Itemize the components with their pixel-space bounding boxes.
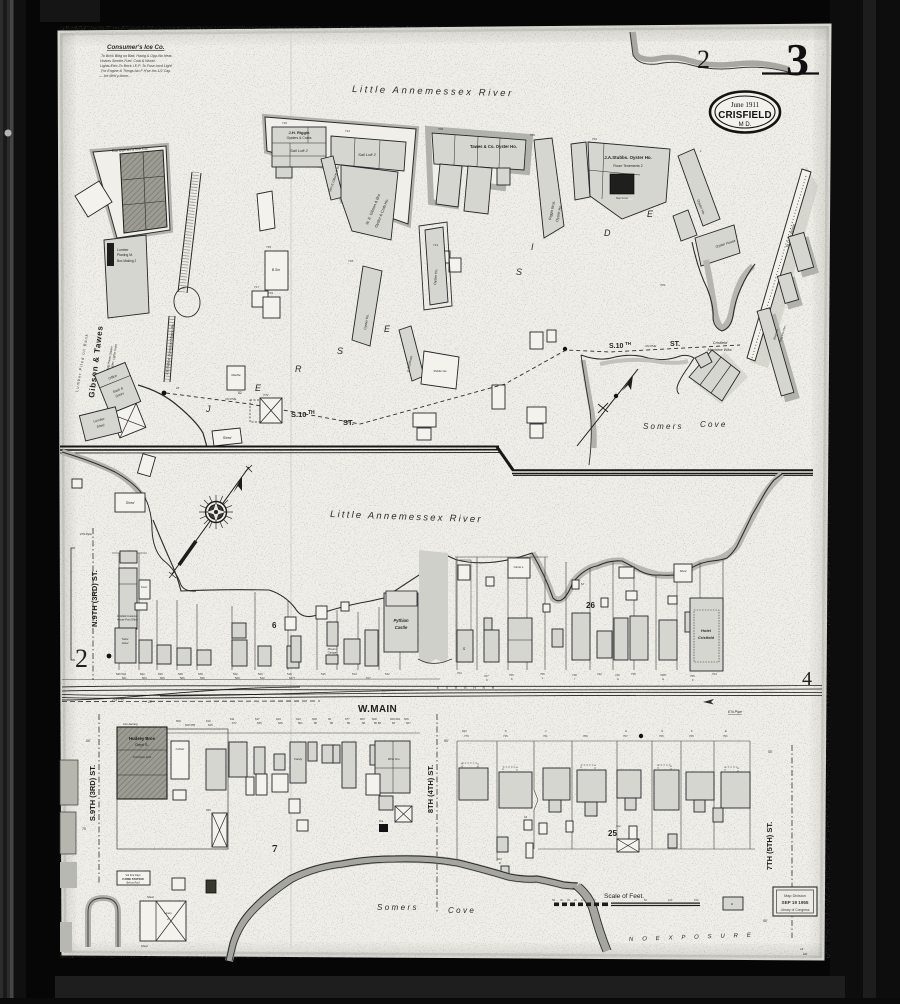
- svg-text:E: E: [647, 209, 654, 219]
- svg-text:Tawes & Co. Oyster Ho.: Tawes & Co. Oyster Ho.: [470, 144, 517, 149]
- svg-text:Room Tenements 2: Room Tenements 2: [613, 164, 642, 168]
- svg-text:80: 80: [347, 721, 351, 725]
- svg-text:Shed: Shed: [680, 569, 687, 573]
- svg-text:Lights:Elec-To Brick I.E.P. To: Lights:Elec-To Brick I.E.P. To Fuse-Incd…: [100, 64, 173, 68]
- svg-text:N.9TH (3RD) ST.: N.9TH (3RD) ST.: [90, 570, 99, 627]
- svg-text:Garage: Garage: [328, 651, 337, 655]
- svg-text:701: 701: [723, 734, 728, 738]
- svg-text:K: K: [511, 677, 513, 681]
- svg-text:Shed: Shed: [126, 501, 135, 505]
- svg-text:Castle: Castle: [395, 625, 408, 630]
- svg-text:Box Making 2: Box Making 2: [117, 259, 137, 263]
- svg-text:H: H: [625, 729, 627, 733]
- svg-text:801: 801: [298, 721, 303, 725]
- svg-text:Iron Awning: Iron Awning: [123, 722, 138, 726]
- svg-text:S: S: [516, 267, 522, 277]
- svg-text:TH: TH: [308, 410, 315, 416]
- svg-text:Shed: Shed: [223, 436, 232, 440]
- svg-text:Court: Court: [141, 585, 148, 589]
- svg-text:To Brick Bldg on Batt, Haulg &: To Brick Bldg on Batt, Haulg & Opp-No He…: [101, 54, 173, 58]
- svg-text:M D.: M D.: [739, 122, 752, 128]
- svg-text:716: 716: [282, 121, 287, 125]
- svg-text:D: D: [604, 228, 611, 238]
- svg-text:E: E: [255, 383, 262, 393]
- svg-text:Scale of Feet.: Scale of Feet.: [604, 893, 644, 900]
- svg-text:14: 14: [800, 947, 804, 951]
- svg-text:M.: M.: [581, 582, 584, 586]
- svg-text:CRISFIELD: CRISFIELD: [718, 110, 772, 121]
- svg-text:Public Ho: Public Ho: [434, 369, 447, 373]
- svg-text:628 655: 628 655: [185, 723, 196, 727]
- svg-text:7: 7: [272, 843, 278, 855]
- svg-text:709: 709: [583, 734, 588, 738]
- svg-text:702: 702: [592, 137, 597, 141]
- svg-text:S.9TH (3RD) ST.: S.9TH (3RD) ST.: [88, 765, 97, 821]
- svg-text:50': 50': [86, 739, 91, 743]
- svg-text:82: 82: [392, 721, 396, 725]
- svg-text:Dept S.: Dept S.: [135, 742, 148, 747]
- svg-text:639: 639: [206, 808, 211, 812]
- svg-text:B.Sm: B.Sm: [272, 268, 280, 272]
- svg-text:Cove: Cove: [700, 420, 727, 429]
- svg-text:Crisfield: Crisfield: [698, 635, 715, 640]
- svg-text:Shed: Shed: [147, 895, 154, 899]
- svg-text:Crisfield Customs: Crisfield Customs: [117, 614, 138, 618]
- svg-text:3: 3: [786, 34, 809, 85]
- svg-text:Candy: Candy: [294, 757, 303, 761]
- svg-text:S.10: S.10: [609, 343, 624, 350]
- svg-text:4'N PVE: 4'N PVE: [645, 344, 657, 348]
- svg-text:779: 779: [464, 734, 469, 738]
- svg-text:25: 25: [608, 829, 617, 838]
- svg-text:7TH (5TH) ST.: 7TH (5TH) ST.: [765, 822, 774, 870]
- svg-text:6: 6: [272, 621, 277, 630]
- svg-text:677: 677: [232, 721, 237, 725]
- svg-text:J.H. Riggin: J.H. Riggin: [289, 130, 310, 135]
- svg-text:F: F: [691, 729, 693, 733]
- svg-text:F.FIRE STATION: F.FIRE STATION: [122, 877, 143, 881]
- svg-text:— Ice Mch'y:Amm.-: — Ice Mch'y:Amm.-: [98, 74, 131, 78]
- svg-text:Library of Congress: Library of Congress: [781, 908, 810, 912]
- svg-text:80: 80: [314, 721, 318, 725]
- svg-text:704: 704: [712, 672, 717, 676]
- svg-text:E'N Pipe: E'N Pipe: [728, 710, 742, 714]
- svg-text:708: 708: [438, 127, 443, 131]
- svg-text:K V R R H R R: K V R R H R R: [437, 686, 497, 690]
- svg-text:E: E: [384, 324, 391, 334]
- svg-text:Fire: Fire: [379, 820, 384, 823]
- svg-text:52: 52: [238, 391, 242, 395]
- svg-text:80: 80: [330, 721, 334, 725]
- svg-text:G: G: [661, 729, 663, 733]
- svg-text:709: 709: [660, 283, 665, 287]
- svg-text:18: 18: [524, 815, 528, 819]
- svg-text:Marble: Marble: [231, 373, 241, 377]
- svg-text:2'W Pipe: 2'W Pipe: [79, 532, 92, 536]
- svg-text:Somers: Somers: [377, 903, 419, 912]
- svg-text:Oysters & Crabs: Oysters & Crabs: [287, 136, 312, 140]
- svg-text:Consumer's Ice Co.: Consumer's Ice Co.: [107, 44, 165, 51]
- svg-text:SEP 19 1955: SEP 19 1955: [782, 900, 809, 905]
- svg-text:A: A: [617, 677, 619, 681]
- svg-text:715: 715: [266, 245, 271, 249]
- svg-text:100: 100: [668, 898, 673, 902]
- svg-text:Map Division: Map Division: [784, 894, 806, 898]
- svg-text:609: 609: [176, 719, 181, 723]
- svg-text:150: 150: [694, 898, 699, 902]
- svg-text:712: 712: [345, 129, 350, 133]
- svg-text:Mission: Mission: [328, 647, 337, 651]
- svg-text:Lumber: Lumber: [117, 248, 129, 252]
- svg-text:Hudsey Bros: Hudsey Bros: [129, 736, 156, 741]
- svg-text:706: 706: [530, 133, 535, 137]
- svg-text:701: 701: [543, 734, 548, 738]
- svg-text:512: 512: [385, 672, 390, 676]
- svg-text:2: 2: [697, 45, 710, 74]
- svg-text:F: F: [692, 678, 694, 682]
- svg-text:4'N PVE: 4'N PVE: [225, 397, 237, 401]
- svg-text:Crisfield: Crisfield: [713, 340, 728, 345]
- svg-text:738: 738: [631, 672, 636, 676]
- svg-text:Hoises Smoke-Fuel: Coal & Wood: Hoises Smoke-Fuel: Coal & Wood-: [100, 59, 157, 63]
- svg-text:80 80: 80 80: [374, 721, 381, 725]
- svg-text:Planing M.: Planing M.: [117, 253, 133, 257]
- svg-text:Sail Loft 2: Sail Loft 2: [290, 148, 309, 153]
- svg-text:26: 26: [586, 601, 595, 610]
- svg-text:D: D: [499, 861, 501, 865]
- svg-text:Furniture 2nd: Furniture 2nd: [133, 755, 151, 759]
- svg-text:717: 717: [254, 285, 259, 289]
- svg-text:102: 102: [616, 824, 621, 828]
- svg-text:S.10: S.10: [291, 410, 306, 419]
- svg-text:ST.: ST.: [343, 418, 354, 427]
- svg-text:Somers: Somers: [643, 422, 684, 431]
- svg-text:718: 718: [348, 259, 353, 263]
- svg-text:G: G: [662, 677, 664, 681]
- svg-text:80: 80: [362, 721, 366, 725]
- svg-text:2: 2: [75, 644, 88, 673]
- svg-text:707: 707: [623, 734, 628, 738]
- svg-text:J: J: [205, 404, 211, 414]
- svg-text:742: 742: [597, 672, 602, 676]
- svg-text:2: 2: [166, 917, 169, 921]
- svg-text:517: 517: [366, 676, 371, 680]
- svg-text:4: 4: [802, 668, 812, 690]
- svg-text:House Post Office: House Post Office: [117, 618, 138, 622]
- svg-text:705: 705: [689, 734, 694, 738]
- svg-text:Whol Gro.: Whol Gro.: [388, 757, 401, 761]
- svg-text:Somerset: Somerset: [620, 197, 633, 201]
- svg-text:50': 50': [763, 919, 768, 923]
- svg-text:625: 625: [278, 721, 283, 725]
- svg-text:June 1911: June 1911: [731, 101, 760, 109]
- svg-text:705: 705: [659, 734, 664, 738]
- svg-text:For Engine & Trimgs-No F H'se-: For Engine & Trimgs-No F H'se-Ins 1/2 Ca…: [101, 69, 170, 73]
- svg-text:Cove: Cove: [448, 906, 476, 915]
- svg-text:514: 514: [352, 672, 357, 676]
- svg-text:516: 516: [321, 672, 326, 676]
- svg-text:65': 65': [444, 739, 449, 743]
- svg-text:K: K: [505, 729, 507, 733]
- svg-text:W.MAIN: W.MAIN: [358, 704, 397, 715]
- svg-text:Bell on Roof: Bell on Roof: [126, 882, 139, 885]
- svg-text:713: 713: [433, 243, 438, 247]
- svg-text:75: 75: [82, 827, 86, 831]
- svg-text:50': 50': [768, 750, 773, 754]
- svg-text:8TH (4TH) ST.: 8TH (4TH) ST.: [426, 765, 435, 813]
- svg-text:J.A.Stubbs. Oyster Ho.: J.A.Stubbs. Oyster Ho.: [604, 155, 652, 160]
- svg-text:Shed: Shed: [141, 944, 148, 948]
- svg-text:S: S: [463, 646, 466, 651]
- svg-text:R: R: [295, 364, 302, 374]
- svg-text:K: K: [486, 678, 488, 682]
- svg-text:Cobbler: Cobbler: [176, 748, 185, 751]
- svg-text:7/72: 7/72: [263, 393, 269, 397]
- svg-text:715: 715: [503, 734, 508, 738]
- svg-text:629: 629: [208, 723, 213, 727]
- svg-text:Pythian: Pythian: [393, 618, 409, 623]
- svg-text:E: E: [725, 729, 727, 733]
- svg-text:Carrie L.: Carrie L.: [514, 565, 525, 569]
- svg-text:607: 607: [406, 721, 411, 725]
- svg-text:623: 623: [462, 729, 467, 733]
- svg-text:20: 20: [147, 700, 152, 704]
- svg-text:719: 719: [268, 291, 273, 295]
- svg-text:Hotel: Hotel: [122, 641, 129, 645]
- svg-text:TH: TH: [625, 341, 631, 346]
- svg-text:Sail Loft 2: Sail Loft 2: [358, 152, 377, 157]
- svg-text:704: 704: [457, 671, 462, 675]
- svg-text:ST.: ST.: [670, 341, 680, 348]
- svg-text:Livery: Livery: [164, 911, 172, 915]
- svg-text:635: 635: [257, 721, 262, 725]
- svg-text:S: S: [337, 346, 343, 356]
- svg-text:16': 16': [176, 386, 180, 390]
- svg-text:Hotel: Hotel: [701, 628, 712, 633]
